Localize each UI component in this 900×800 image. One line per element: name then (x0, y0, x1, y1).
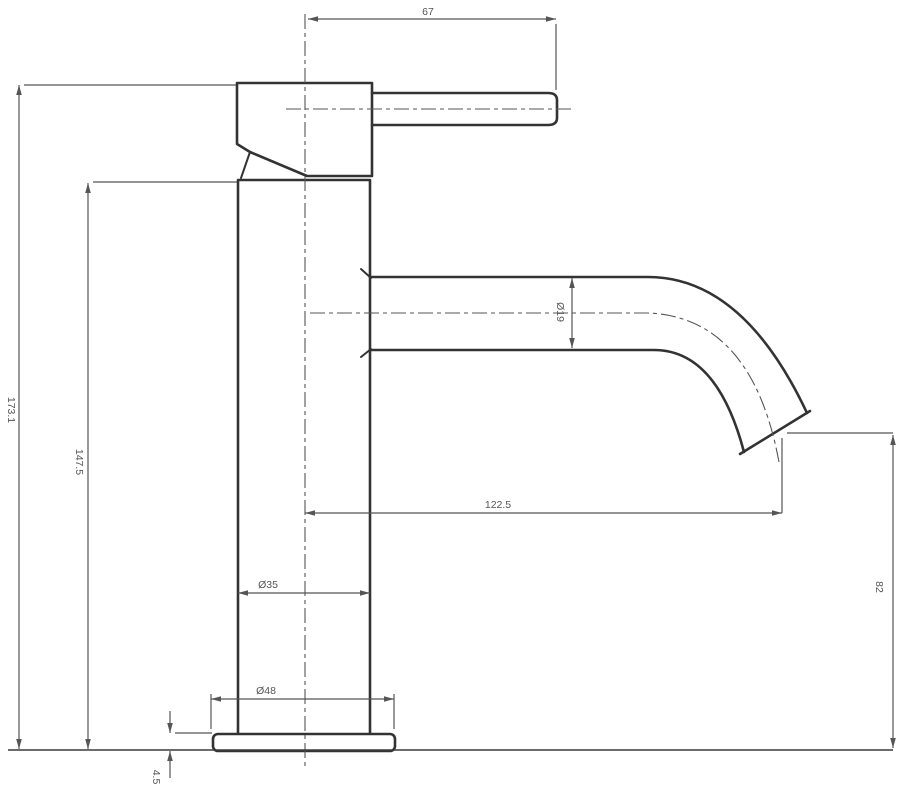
dim-label-body-height: 147.5 (73, 449, 85, 475)
arrowhead-top (569, 278, 575, 288)
arrowhead-bottom (16, 739, 22, 749)
arrowhead-right (384, 696, 394, 702)
dim-label-spout-reach: 122.5 (485, 499, 511, 511)
dim-label-base-diameter: Ø48 (256, 685, 276, 697)
dim-overall-height: 173.1 (5, 85, 236, 749)
dim-lever-length: 67 (308, 6, 556, 90)
arrowhead-right (546, 16, 556, 22)
arrowhead-left (305, 510, 315, 516)
technical-drawing-page: 67 173.1 147.5 Ø19 (0, 0, 900, 800)
dim-label-body-diameter: Ø35 (258, 579, 278, 591)
dim-base-thickness: 4.5 (150, 711, 212, 784)
arrowhead-top (890, 435, 896, 445)
faucet-dimension-drawing: 67 173.1 147.5 Ø19 (0, 0, 900, 800)
arrowhead-up (167, 751, 173, 761)
arrowhead-down (167, 723, 173, 733)
faucet-outline (213, 83, 810, 751)
dim-label-overall-height: 173.1 (5, 397, 17, 423)
arrowhead-bottom (890, 738, 896, 748)
spout-axis-centerline (310, 313, 779, 462)
dim-label-spout-diameter: Ø19 (554, 302, 566, 322)
dim-body-diameter: Ø35 (238, 579, 370, 596)
spout-bottom-edge (370, 350, 744, 452)
base-flange (213, 734, 395, 751)
dim-label-outlet-height: 82 (873, 581, 885, 593)
arrowhead-bottom (85, 739, 91, 749)
body-column (238, 180, 370, 733)
arrowhead-top (85, 183, 91, 193)
arrowhead-left (211, 696, 221, 702)
handle-base-edge (241, 152, 250, 178)
arrowhead-bottom (569, 338, 575, 348)
spout-top-edge (370, 277, 807, 413)
dim-body-height: 147.5 (73, 182, 237, 749)
arrowhead-right (772, 510, 782, 516)
dim-label-lever-length: 67 (422, 6, 434, 18)
dim-spout-reach: 122.5 (305, 438, 782, 516)
arrowhead-left (238, 590, 248, 596)
arrowhead-top (16, 85, 22, 95)
dim-label-base-thickness: 4.5 (150, 770, 162, 785)
dim-outlet-height: 82 (787, 433, 896, 748)
arrowhead-left (308, 16, 318, 22)
arrowhead-right (360, 590, 370, 596)
centerlines (286, 14, 779, 770)
dim-spout-diameter: Ø19 (554, 278, 575, 348)
